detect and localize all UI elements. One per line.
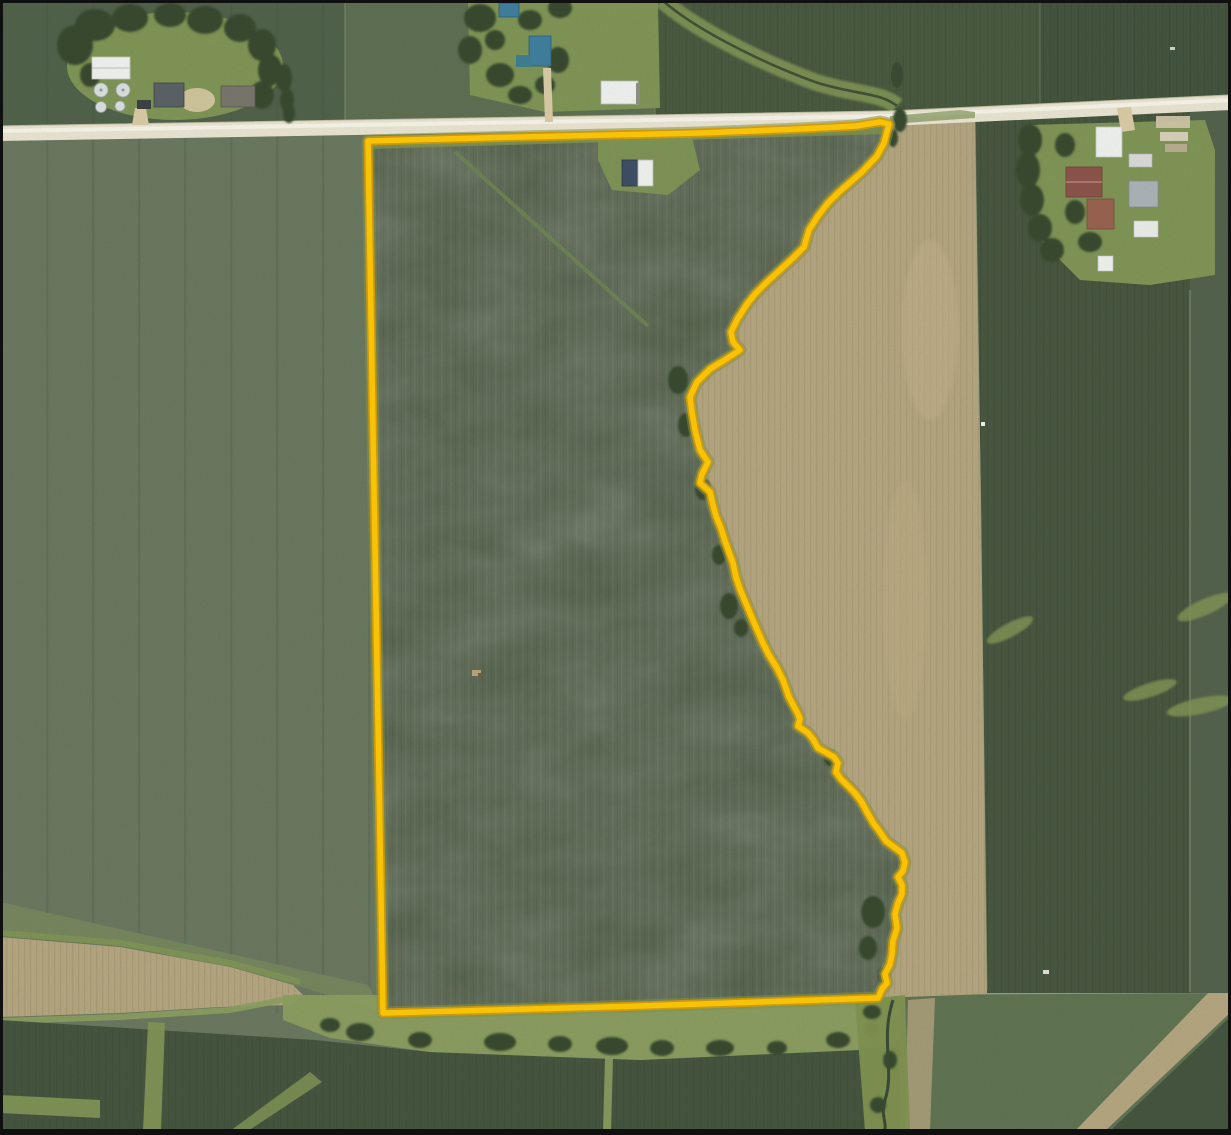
aerial-photo (0, 0, 1231, 1135)
aerial-parcel-map (0, 0, 1231, 1135)
photo-grain (0, 0, 1231, 1135)
